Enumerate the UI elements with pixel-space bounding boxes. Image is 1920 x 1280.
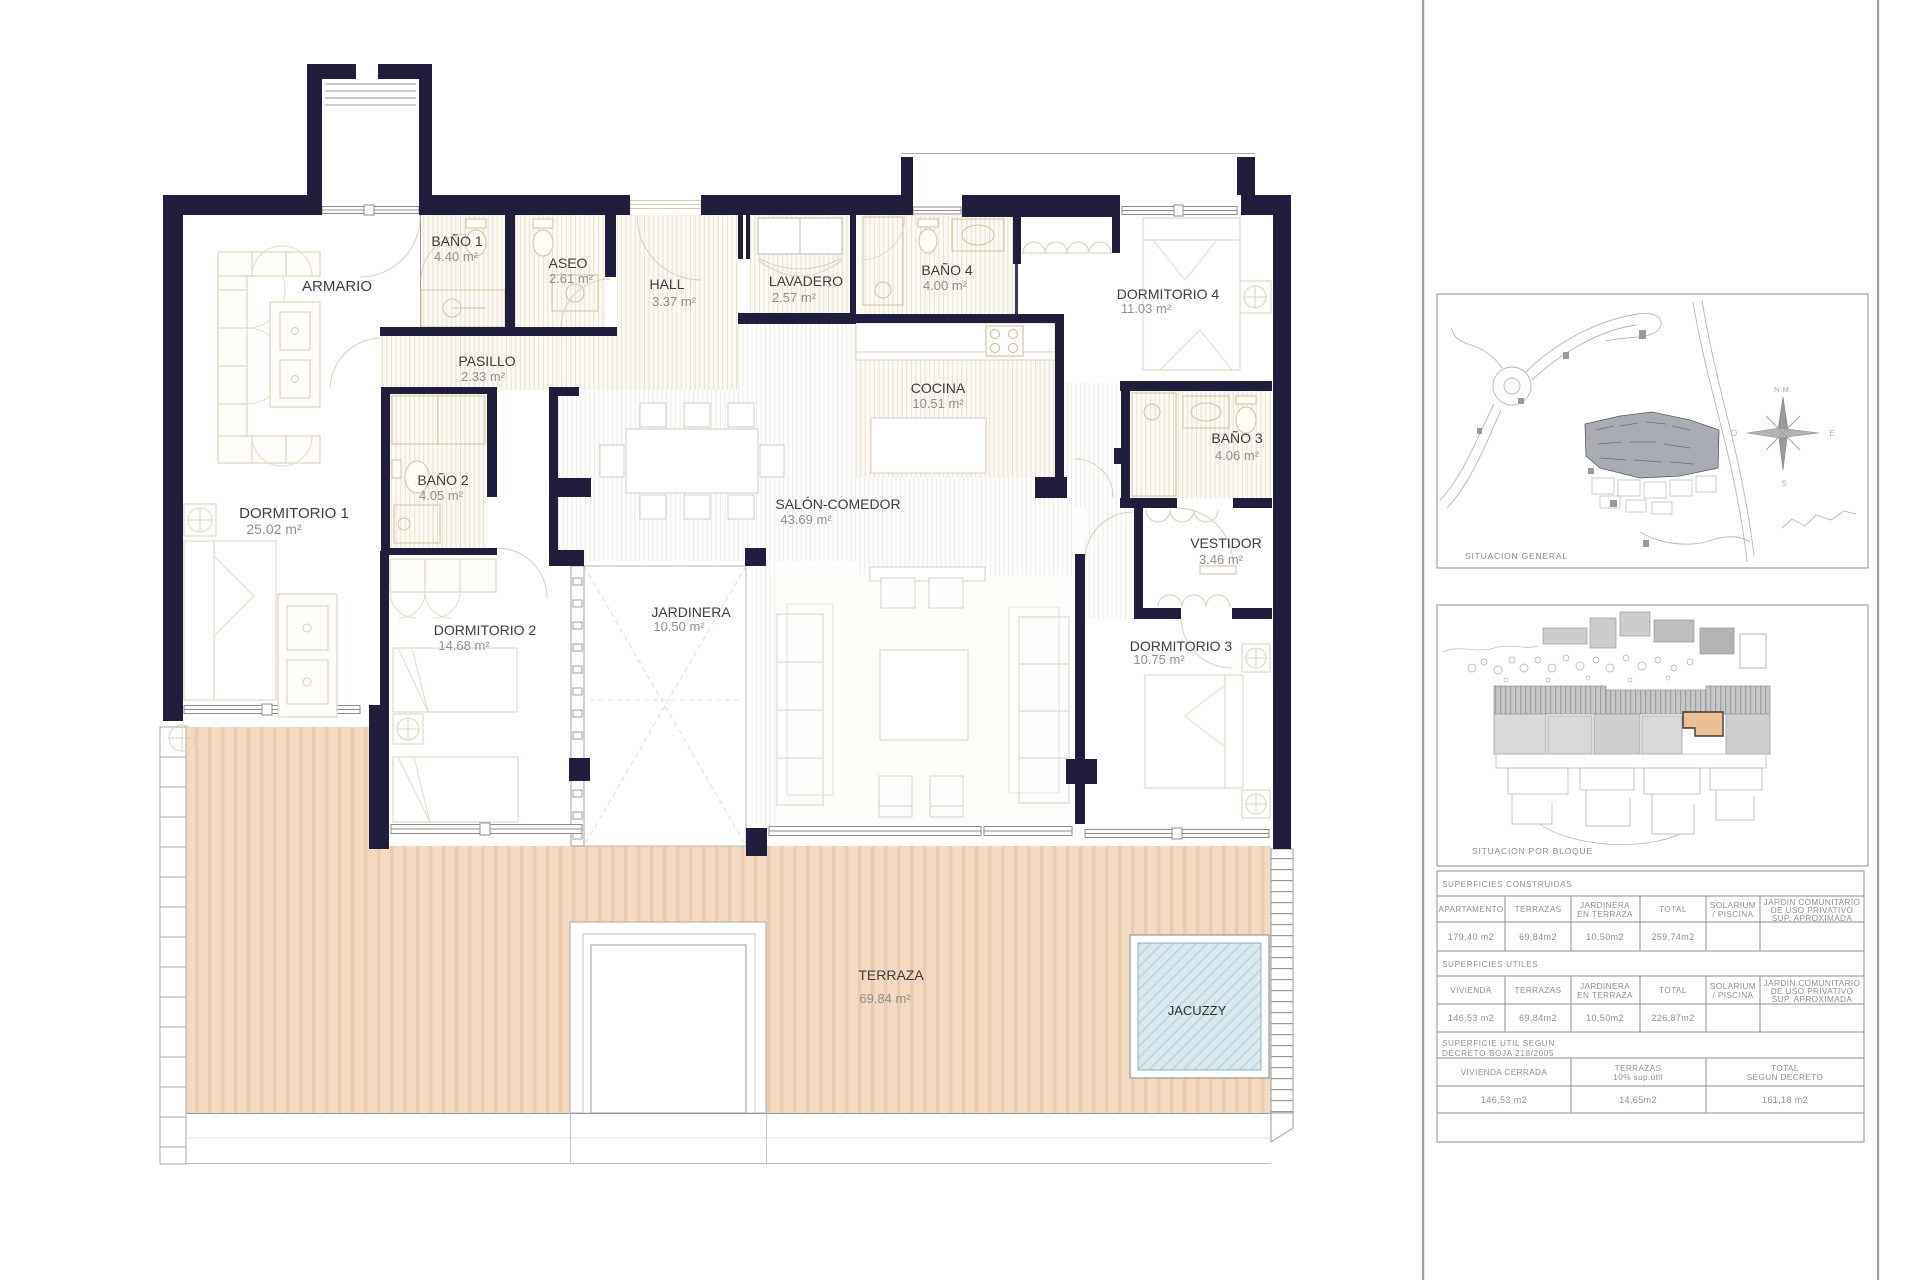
svg-text:BAÑO 3: BAÑO 3 (1211, 430, 1263, 446)
svg-text:10,50m2: 10,50m2 (1586, 1013, 1624, 1023)
svg-text:SUP. APROXIMADA: SUP. APROXIMADA (1772, 914, 1853, 923)
svg-text:SUPERFICIES UTILES: SUPERFICIES UTILES (1442, 960, 1538, 969)
svg-text:4.06 m²: 4.06 m² (1215, 448, 1260, 463)
svg-text:JARDINERA: JARDINERA (651, 604, 731, 620)
svg-text:TOTAL: TOTAL (1659, 905, 1687, 914)
svg-text:43.69 m²: 43.69 m² (780, 512, 832, 527)
svg-text:179,40 m2: 179,40 m2 (1448, 932, 1494, 942)
svg-text:JARDINERA: JARDINERA (1580, 982, 1630, 991)
svg-text:10.75 m²: 10.75 m² (1133, 652, 1185, 667)
svg-text:259,74m2: 259,74m2 (1651, 932, 1694, 942)
svg-text:SOLARIUM: SOLARIUM (1710, 901, 1756, 910)
svg-text:25.02 m²: 25.02 m² (246, 521, 302, 537)
svg-text:EN TERRAZA: EN TERRAZA (1577, 991, 1633, 1000)
svg-text:226,87m2: 226,87m2 (1651, 1013, 1694, 1023)
svg-text:TOTAL: TOTAL (1659, 986, 1687, 995)
svg-text:VIVIENDA: VIVIENDA (1450, 986, 1492, 995)
svg-text:EN TERRAZA: EN TERRAZA (1577, 910, 1633, 919)
svg-text:2.57 m²: 2.57 m² (772, 290, 817, 305)
svg-text:BAÑO 2: BAÑO 2 (417, 472, 469, 488)
svg-text:4.40 m²: 4.40 m² (434, 249, 479, 264)
svg-text:ARMARIO: ARMARIO (302, 278, 372, 295)
svg-text:4.00 m²: 4.00 m² (923, 278, 968, 293)
svg-text:TERRAZA: TERRAZA (858, 967, 924, 983)
svg-text:COCINA: COCINA (911, 380, 966, 396)
svg-text:SOLARIUM: SOLARIUM (1710, 982, 1756, 991)
svg-text:DORMITORIO 1: DORMITORIO 1 (239, 505, 349, 522)
svg-text:TERRAZAS: TERRAZAS (1515, 905, 1562, 914)
svg-text:O: O (1731, 429, 1737, 438)
svg-text:SEGUN DECRETO: SEGUN DECRETO (1747, 1073, 1823, 1082)
svg-text:SUPERFICIES CONSTRUIDAS: SUPERFICIES CONSTRUIDAS (1442, 880, 1572, 889)
svg-text:2.33 m²: 2.33 m² (461, 369, 506, 384)
svg-text:146,53 m2: 146,53 m2 (1448, 1013, 1494, 1023)
svg-text:JACUZZY: JACUZZY (1168, 1003, 1227, 1018)
svg-text:10.51 m²: 10.51 m² (912, 396, 964, 411)
svg-text:DORMITORIO 2: DORMITORIO 2 (434, 622, 537, 638)
svg-text:BAÑO 1: BAÑO 1 (431, 233, 483, 249)
svg-text:BAÑO 4: BAÑO 4 (921, 262, 973, 278)
svg-text:VESTIDOR: VESTIDOR (1190, 535, 1262, 551)
svg-text:TOTAL: TOTAL (1771, 1064, 1799, 1073)
svg-text:146,53 m2: 146,53 m2 (1481, 1095, 1527, 1105)
svg-text:JARDINERA: JARDINERA (1580, 901, 1630, 910)
svg-text:TERRAZAS: TERRAZAS (1515, 986, 1562, 995)
svg-text:SALÓN-COMEDOR: SALÓN-COMEDOR (775, 496, 900, 512)
svg-text:69,84m2: 69,84m2 (1519, 932, 1557, 942)
svg-text:69.84 m²: 69.84 m² (859, 991, 911, 1006)
svg-text:14,65m2: 14,65m2 (1619, 1095, 1657, 1105)
svg-text:DORMITORIO 4: DORMITORIO 4 (1117, 286, 1220, 302)
svg-text:HALL: HALL (649, 276, 684, 292)
svg-text:4.05 m²: 4.05 m² (419, 488, 464, 503)
svg-text:2.61 m²: 2.61 m² (549, 271, 594, 286)
svg-text:TERRAZAS: TERRAZAS (1615, 1064, 1662, 1073)
svg-text:10% sup.útil: 10% sup.útil (1613, 1073, 1662, 1082)
svg-text:161,18 m2: 161,18 m2 (1762, 1095, 1808, 1105)
svg-text:E: E (1829, 429, 1834, 438)
svg-text:N.M.: N.M. (1774, 385, 1792, 394)
svg-text:SITUACION POR BLOQUE: SITUACION POR BLOQUE (1472, 846, 1593, 856)
svg-text:S: S (1781, 479, 1786, 488)
svg-text:69,84m2: 69,84m2 (1519, 1013, 1557, 1023)
svg-text:VIVIENDA CERRADA: VIVIENDA CERRADA (1461, 1068, 1548, 1077)
svg-text:3.46 m²: 3.46 m² (1199, 552, 1244, 567)
svg-text:11.03 m²: 11.03 m² (1121, 301, 1172, 316)
svg-text:ASEO: ASEO (549, 255, 588, 271)
svg-text:DECRETO BOJA 218/2005: DECRETO BOJA 218/2005 (1442, 1049, 1554, 1058)
svg-text:LAVADERO: LAVADERO (769, 273, 843, 289)
svg-text:SUP. APROXIMADA: SUP. APROXIMADA (1772, 995, 1853, 1004)
svg-text:10.50 m²: 10.50 m² (653, 619, 705, 634)
svg-text:APARTAMENTO: APARTAMENTO (1438, 905, 1503, 914)
svg-text:3.37 m²: 3.37 m² (652, 294, 697, 309)
svg-text:14.68 m²: 14.68 m² (438, 638, 490, 653)
svg-text:PASILLO: PASILLO (458, 353, 515, 369)
svg-text:/ PISCINA: / PISCINA (1713, 991, 1754, 1000)
svg-text:SITUACION GENERAL: SITUACION GENERAL (1465, 551, 1568, 561)
svg-text:10,50m2: 10,50m2 (1586, 932, 1624, 942)
svg-text:/ PISCINA: / PISCINA (1713, 910, 1754, 919)
svg-text:SUPERFICIE UTIL SEGUN: SUPERFICIE UTIL SEGUN (1442, 1039, 1555, 1048)
